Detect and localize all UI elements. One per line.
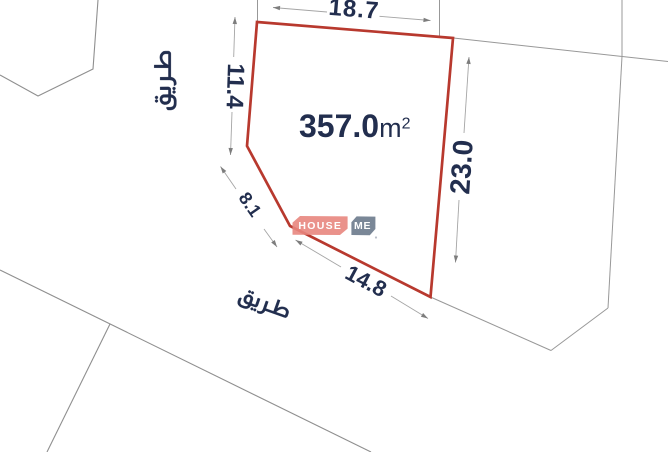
svg-text:ME: ME [354, 220, 371, 232]
svg-text:357.0m2: 357.0m2 [299, 108, 411, 144]
svg-text:11.4: 11.4 [221, 63, 250, 110]
svg-text:HOUSE: HOUSE [298, 220, 342, 232]
svg-text:18.7: 18.7 [328, 0, 381, 25]
svg-text:23.0: 23.0 [444, 139, 479, 195]
